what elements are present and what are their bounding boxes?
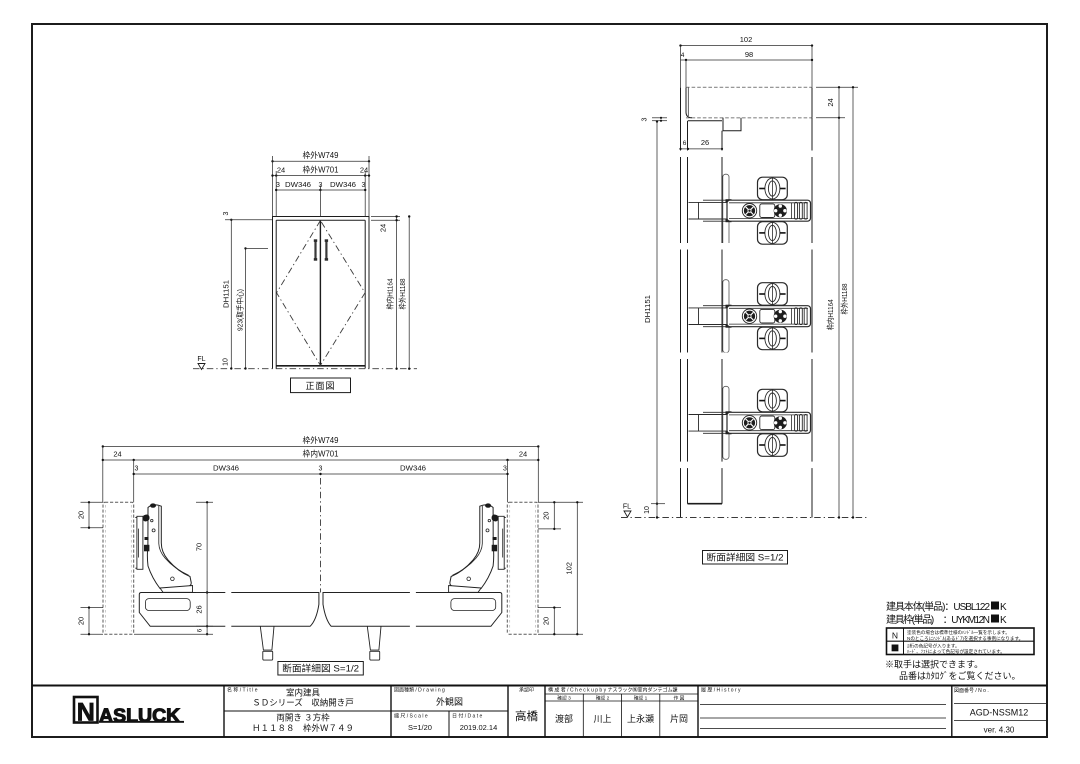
svg-text:70: 70 [195,543,204,551]
svg-text:図面番号 / N o .: 図面番号 / N o . [954,687,989,694]
svg-text:20: 20 [77,511,86,519]
svg-text:24: 24 [519,450,527,459]
svg-text:建具枠(単品) ：UYKM12N: 建具枠(単品) ：UYKM12N [886,613,990,626]
svg-text:日 付 / D a t e: 日 付 / D a t e [452,713,483,720]
svg-text:確認 3: 確認 3 [557,694,571,701]
svg-text:ASLUCK: ASLUCK [99,705,180,727]
svg-text:高橋: 高橋 [515,709,538,723]
svg-text:10: 10 [644,506,651,514]
svg-text:20: 20 [77,617,86,625]
svg-text:DH1151: DH1151 [643,295,652,323]
svg-text:外観図: 外観図 [436,696,463,707]
svg-text:上永瀬: 上永瀬 [627,713,654,724]
svg-text:2019.02.14: 2019.02.14 [460,723,498,732]
svg-text:DH1151: DH1151 [221,280,230,308]
svg-text:正面図: 正面図 [305,381,335,391]
svg-text:品番はｶﾀﾛｸﾞをご覧ください。: 品番はｶﾀﾛｸﾞをご覧ください。 [899,670,1021,681]
svg-text:建具本体(単品)：USBL122: 建具本体(単品)：USBL122 [886,600,990,613]
svg-text:3: 3 [223,211,230,215]
svg-text:102: 102 [565,562,574,575]
svg-text:枠外H1188: 枠外H1188 [397,279,407,310]
svg-text:DW346: DW346 [330,180,356,189]
svg-text:枠外W749: 枠外W749 [303,150,340,160]
svg-text:K: K [1000,615,1007,626]
svg-text:Ｈ１１８８ 枠外Ｗ７４９: Ｈ１１８８ 枠外Ｗ７４９ [252,723,354,733]
svg-text:S=1/20: S=1/20 [408,723,432,732]
svg-text:24: 24 [360,166,368,175]
svg-text:3: 3 [135,466,139,473]
svg-text:K: K [1000,602,1007,613]
svg-text:AGD-NSSM12: AGD-NSSM12 [970,708,1029,718]
svg-text:枠内H1164: 枠内H1164 [384,279,394,310]
svg-text:枠内W701: 枠内W701 [303,449,340,459]
svg-text:FL: FL [197,356,205,363]
svg-text:構 成 者 / C h e c k u p b y: 構 成 者 / C h e c k u p b y ナスラック㈱室内ダンテゴム課 [548,687,677,694]
svg-text:10: 10 [223,358,230,366]
svg-text:枠外H1188: 枠外H1188 [839,284,849,315]
svg-text:3: 3 [319,466,323,473]
svg-text:室内建具: 室内建具 [286,688,321,698]
svg-text:24: 24 [277,166,285,175]
svg-text:Nのところにﾊﾝﾄﾞﾙ(あるﾄﾞｱ)を選択する事例になります: Nのところにﾊﾝﾄﾞﾙ(あるﾄﾞｱ)を選択する事例になります。 [907,635,1023,642]
svg-text:98: 98 [745,50,753,59]
svg-text:ver. 4.30: ver. 4.30 [984,726,1015,735]
svg-text:6: 6 [197,628,204,632]
svg-text:作 図: 作 図 [674,694,685,701]
svg-text:DW346: DW346 [285,180,311,189]
svg-text:6: 6 [683,140,687,147]
svg-text:N: N [77,699,95,727]
svg-text:20: 20 [542,512,551,520]
svg-text:923(取手中心): 923(取手中心) [235,289,245,331]
svg-text:N: N [892,630,898,640]
svg-text:20: 20 [542,617,551,625]
svg-text:両開き ３方枠: 両開き ３方枠 [276,713,330,723]
svg-text:履 歴 / H i s t o r y: 履 歴 / H i s t o r y [701,688,741,694]
svg-text:枠外W749: 枠外W749 [303,435,340,445]
svg-text:図面種類 / D r a w i n g: 図面種類 / D r a w i n g [394,687,445,694]
svg-text:承認印: 承認印 [519,687,534,694]
svg-text:縮 尺 / S c a l e: 縮 尺 / S c a l e [394,713,428,720]
svg-text:26: 26 [195,605,204,613]
svg-text:※取手は選択できます。: ※取手は選択できます。 [885,659,983,670]
svg-text:確認 1: 確認 1 [634,694,648,701]
svg-text:渡部: 渡部 [555,713,573,724]
svg-text:3: 3 [362,182,366,189]
svg-text:枠外W701: 枠外W701 [303,165,340,175]
svg-text:24: 24 [379,224,388,232]
svg-text:3: 3 [503,466,507,473]
svg-text:FL: FL [623,504,631,511]
svg-text:確認 2: 確認 2 [596,694,610,701]
svg-text:24: 24 [826,98,835,106]
svg-text:DW346: DW346 [213,464,239,473]
svg-text:26: 26 [701,138,709,147]
svg-text:3: 3 [318,182,322,189]
svg-text:断面詳細図 S=1/2: 断面詳細図 S=1/2 [707,552,784,563]
svg-text:3: 3 [642,117,649,121]
svg-text:3: 3 [276,182,280,189]
svg-text:DW346: DW346 [400,464,426,473]
svg-text:川上: 川上 [593,714,611,724]
svg-text:枠内H1164: 枠内H1164 [825,299,835,330]
svg-text:断面詳細図 S=1/2: 断面詳細図 S=1/2 [282,663,359,674]
svg-text:ＳＤシリーズ 収納開き戸: ＳＤシリーズ 収納開き戸 [252,698,354,708]
svg-text:24: 24 [113,450,121,459]
svg-text:片岡: 片岡 [670,713,688,724]
svg-text:4: 4 [681,52,685,59]
svg-text:102: 102 [740,35,753,44]
svg-text:名 称 / T i t l e: 名 称 / T i t l e [227,687,258,694]
svg-text:ﾊｰﾄﾞ、ｿﾌﾄによって色記号が設定されています。: ﾊｰﾄﾞ、ｿﾌﾄによって色記号が設定されています。 [907,648,1005,655]
